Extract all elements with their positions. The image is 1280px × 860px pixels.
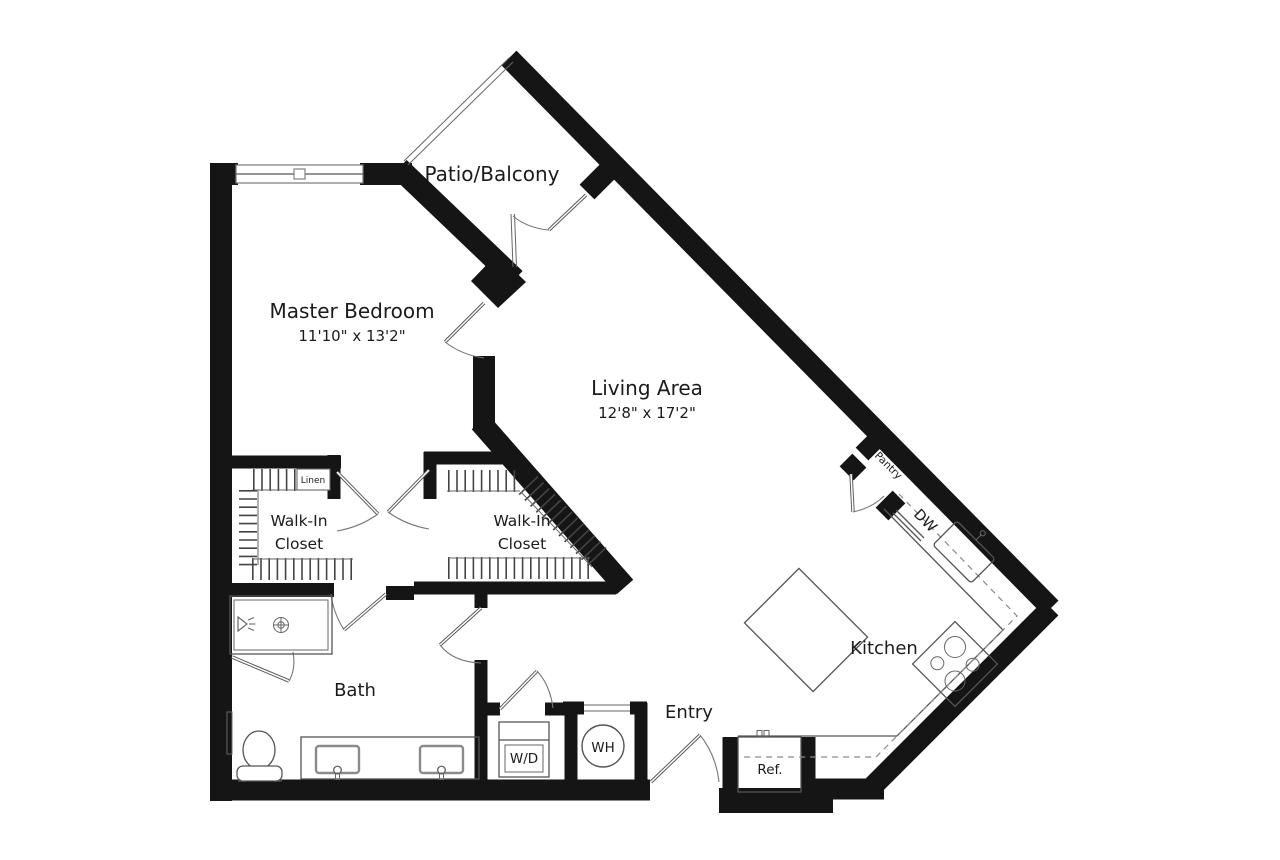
shower-head-body: [238, 617, 247, 631]
toilet-tank: [237, 766, 282, 781]
floor-plan-page: Patio/Balcony Master Bedroom 11'10" x 13…: [0, 0, 1280, 860]
bedroom-window: [236, 165, 363, 183]
patio-door-leaf-core: [549, 195, 586, 230]
vanity-counter: [301, 737, 479, 780]
closet2-door-leaf-core: [388, 470, 429, 512]
washer-dryer-outline: [499, 722, 549, 777]
closet1-door-leaf-core: [337, 472, 378, 514]
bath-door-leaf-core: [344, 594, 386, 630]
master-bedroom-label: Master Bedroom: [269, 299, 434, 323]
window-mullion: [294, 169, 305, 179]
entry-door-leaf-core: [651, 735, 700, 782]
closet1-label-line1: Walk-In: [270, 512, 327, 530]
kitchen-label: Kitchen: [850, 638, 918, 659]
bath-door-swing-arc: [331, 594, 344, 630]
kitchen-island-outline: [744, 568, 867, 691]
patio-railing: [404, 58, 513, 165]
living-area-dimensions: 12'8" x 17'2": [598, 404, 696, 422]
water-heater-louver-door: [584, 705, 630, 711]
burner-small-2: [928, 654, 946, 672]
entry-door-swing-arc: [700, 735, 719, 782]
closet1-door-swing-arc: [337, 514, 378, 531]
patio-label: Patio/Balcony: [424, 162, 559, 186]
bedroom-living-wall-junction: [471, 254, 526, 308]
refrigerator-label: Ref.: [757, 762, 782, 778]
bath-label: Bath: [334, 680, 376, 701]
bath-top-wall: [212, 590, 414, 593]
hall-door-leaf-core: [440, 608, 481, 645]
shower-head-icon: [238, 617, 256, 631]
kitchen-island: [744, 568, 867, 691]
laundry-door-swing-arc: [537, 671, 553, 708]
closet1-label-line2: Closet: [275, 535, 323, 553]
shower-door-swing-arc: [289, 652, 294, 681]
bedroom-door-swing-arc: [445, 342, 484, 358]
patio-door-swing-arc: [513, 216, 549, 230]
railing-lines: [404, 58, 513, 165]
toilet-bowl: [243, 731, 275, 769]
closet-and-hall-walls: [232, 452, 647, 783]
shower-drain-icon: [274, 618, 289, 633]
closet2-label-line1: Walk-In: [493, 512, 550, 530]
linen-label: Linen: [301, 476, 325, 486]
closet2-door-swing-arc: [388, 512, 429, 529]
patio-door-jamb: [511, 214, 517, 267]
bedroom-door-leaf-core: [445, 303, 484, 342]
entry-label: Entry: [665, 702, 713, 723]
floor-plan-drawing: Patio/Balcony Master Bedroom 11'10" x 13…: [0, 0, 1280, 860]
shower-door-leaf-core: [232, 657, 289, 681]
burner-large-1: [940, 632, 970, 662]
shower-spray-lines: [248, 618, 256, 631]
exterior-wall-run: [210, 163, 515, 801]
labels: Patio/Balcony Master Bedroom 11'10" x 13…: [269, 162, 939, 778]
laundry-door-leaf-core: [500, 671, 537, 709]
toilet-icon: [237, 731, 282, 781]
master-bedroom-dimensions: 11'10" x 13'2": [298, 327, 405, 345]
washer-dryer-label: W/D: [510, 751, 538, 767]
washer-dryer-icon: [499, 722, 549, 777]
water-heater-label: WH: [591, 740, 615, 756]
living-area-label: Living Area: [591, 376, 703, 400]
closet2-label-line2: Closet: [498, 535, 546, 553]
patio-door: [511, 195, 586, 267]
